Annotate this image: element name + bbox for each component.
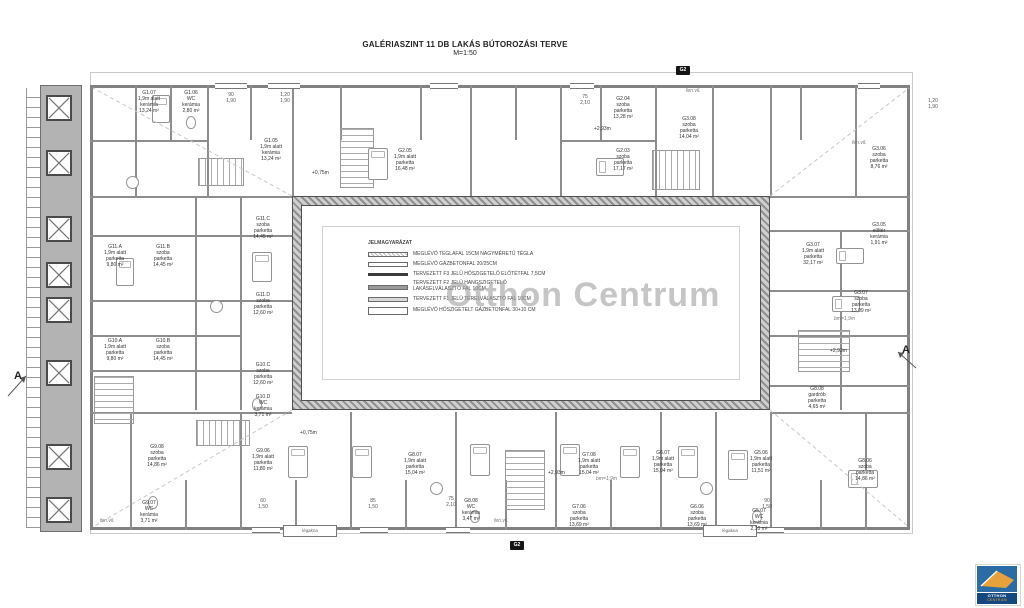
wall-segment: [90, 140, 207, 142]
room-label: G3.06 szoba parketta 8,76 m²: [856, 146, 902, 170]
legend-label: MEGLÉVŐ TÉGLAFAL 15CM NAGYMÉRETŰ TÉGLA: [413, 252, 533, 258]
table-icon: [210, 300, 223, 313]
dimension-label: 90 1,90: [218, 92, 244, 104]
room-label: G9.06 1,9m alatt parketta 11,80 m²: [240, 448, 286, 472]
room-label: G10.A 1,9m alatt parketta 9,80 m²: [92, 338, 138, 362]
dimension-label: 75 2,10: [572, 94, 598, 106]
skylight-note: fen.vil.: [686, 88, 700, 94]
wall-segment: [610, 480, 612, 530]
skylight-icon: [46, 297, 72, 323]
legend-row: MEGLÉVŐ TÉGLAFAL 15CM NAGYMÉRETŰ TÉGLA: [368, 252, 624, 258]
wall-segment: [420, 85, 422, 140]
room-label: G5.07 WC kerámia 2,10 m²: [736, 508, 782, 532]
window-symbol: [570, 83, 594, 89]
room-label: G3.07 szoba parketta 13,09 m²: [838, 290, 884, 314]
section-marker-g2-bottom: G2: [510, 541, 524, 550]
room-label: G3.07 1,9m alatt parketta 32,17 m²: [790, 242, 836, 266]
legend-swatch-f3-icon: [368, 273, 408, 276]
legend-label: TERVEZETT F1 JELŰ TÉRELVÁLASZTÓ FAL 10CM: [413, 297, 531, 303]
level-marker: +2,93m: [548, 470, 565, 476]
level-marker: +2,93m: [594, 126, 611, 132]
window-symbol: [268, 83, 300, 89]
skylight-icon: [46, 150, 72, 176]
bed-icon: [252, 252, 272, 282]
dimension-label: 75 2,10: [438, 496, 464, 508]
room-label: G11.C szoba parketta 14,45 m²: [240, 216, 286, 240]
room-label: G1.07 1,9m alatt kerámia 13,24 m²: [126, 90, 172, 114]
height-note: bm=1,9m: [834, 316, 855, 322]
room-label: G2.03 szoba parketta 17,17 m²: [600, 148, 646, 172]
wall-segment: [515, 85, 517, 140]
toilet-icon: [186, 116, 196, 129]
legend-row: MEGLÉVŐ GÁZBETONFAL 20/25CM: [368, 262, 624, 268]
room-label: G11.B szoba parketta 14,45 m²: [140, 244, 186, 268]
skylight-icon: [46, 360, 72, 386]
wall-segment: [770, 85, 772, 196]
window-symbol: [360, 527, 388, 533]
bed-icon: [352, 446, 372, 478]
room-label: G8.08 gardrób parketta 4,65 m²: [794, 386, 840, 410]
table-icon: [430, 482, 443, 495]
legend-title: JELMAGYARÁZAT: [368, 240, 624, 246]
stairs: [198, 158, 244, 186]
legend-label: TERVEZETT F3 JELŰ HŐSZIGETELŐ ELŐTÉTFAL …: [413, 272, 545, 278]
table-icon: [126, 176, 139, 189]
room-label: G10.B szoba parketta 14,45 m²: [140, 338, 186, 362]
drawing-title: GALÉRIASZINT 11 DB LAKÁS BÚTOROZÁSI TERV…: [300, 40, 630, 49]
skylight-note: fen.vil.: [852, 140, 866, 146]
legend-label: MEGLÉVŐ HŐSZIGETELT GÁZBETONFAL 30+10 CM: [413, 308, 536, 314]
stairs: [196, 420, 250, 446]
window-symbol: [215, 83, 247, 89]
air-shaft: légakna: [283, 525, 337, 537]
window-symbol: [430, 83, 458, 89]
window-symbol: [446, 527, 470, 533]
room-label: G3.08 szoba parketta 14,04 m²: [666, 116, 712, 140]
otthon-centrum-logo: OTTHON CENTRUM: [975, 564, 1021, 606]
wall-segment: [560, 140, 655, 142]
room-label: G2.05 1,9m alatt parketta 16,48 m²: [382, 148, 428, 172]
dimension-label: 1,20 1,90: [920, 98, 946, 110]
room-label: G11.D szoba parketta 12,60 m²: [240, 292, 286, 316]
legend-swatch-f1-icon: [368, 297, 408, 302]
room-label: G7.06 szoba parketta 13,69 m²: [556, 504, 602, 528]
wall-segment: [770, 196, 910, 198]
edge-hatch: [26, 88, 41, 528]
room-label: G2.04 szoba parketta 13,28 m²: [600, 96, 646, 120]
skylight-icon: [46, 497, 72, 523]
legend-label: TERVEZETT F2 JELŰ HANGSZIGETELŐ LAKÁSELV…: [413, 281, 507, 293]
wall-segment: [800, 85, 802, 140]
bed-icon: [836, 248, 864, 264]
level-marker: +0,75m: [312, 170, 329, 176]
section-marker-a-left: A: [14, 370, 22, 382]
wall-segment: [820, 480, 822, 530]
skylight-icon: [46, 95, 72, 121]
skylight-note: fen.vil.: [494, 518, 508, 524]
room-label: G10.D WC kerámia 3,71 m²: [240, 394, 286, 418]
bed-icon: [288, 446, 308, 478]
wall-segment: [90, 335, 240, 337]
room-label: G3.05 előtér kerámia 1,91 m²: [856, 222, 902, 246]
legend-label: MEGLÉVŐ GÁZBETONFAL 20/25CM: [413, 262, 497, 268]
room-label: G7.08 1,9m alatt parketta 15,04 m²: [566, 452, 612, 476]
legend-swatch-brick-icon: [368, 252, 408, 257]
level-marker: +0,75m: [300, 430, 317, 436]
dimension-label: 1,20 1,90: [272, 92, 298, 104]
height-note: bm=1,9m: [596, 476, 617, 482]
room-label: G8.07 1,9m alatt parketta 15,04 m²: [392, 452, 438, 476]
window-symbol: [252, 527, 280, 533]
dimension-label: 90 1,50: [754, 498, 780, 510]
room-label: G5.06 1,9m alatt parketta 11,51 m²: [738, 450, 784, 474]
legend-row: MEGLÉVŐ HŐSZIGETELT GÁZBETONFAL 30+10 CM: [368, 307, 624, 315]
room-label: G1.05 1,9m alatt kerámia 13,24 m²: [248, 138, 294, 162]
skylight-icon: [46, 444, 72, 470]
floor-plan-canvas: GALÉRIASZINT 11 DB LAKÁS BÚTOROZÁSI TERV…: [0, 0, 1024, 608]
room-label: G9.07 WC kerámia 3,71 m²: [126, 500, 172, 524]
wall-segment: [250, 85, 252, 140]
drawing-scale: M=1:50: [300, 50, 630, 57]
dimension-label: 85 1,50: [360, 498, 386, 510]
wall-segment: [770, 412, 910, 414]
logo-line2: CENTRUM: [977, 598, 1017, 602]
legend: JELMAGYARÁZAT MEGLÉVŐ TÉGLAFAL 15CM NAGY…: [368, 240, 624, 319]
legend-row: TERVEZETT F1 JELŰ TÉRELVÁLASZTÓ FAL 10CM: [368, 297, 624, 303]
room-label: G6.07 1,9m alatt parketta 15,04 m²: [640, 450, 686, 474]
room-label: G1.06 WC kerámia 2,80 m²: [168, 90, 214, 114]
section-marker-a-right: A: [902, 344, 910, 356]
wall-segment: [405, 480, 407, 530]
wall-segment: [185, 480, 187, 530]
legend-swatch-gasconcrete-icon: [368, 262, 408, 267]
wall-segment: [712, 85, 714, 196]
skylight-icon: [46, 216, 72, 242]
legend-swatch-insulated-icon: [368, 307, 408, 315]
logo-wordmark: OTTHON CENTRUM: [977, 593, 1017, 604]
bed-icon: [470, 444, 490, 476]
stairs: [652, 150, 700, 190]
room-label: G10.C szoba parketta 12,60 m²: [240, 362, 286, 386]
wall-segment: [90, 196, 292, 198]
legend-swatch-f2-icon: [368, 285, 408, 290]
stairs: [94, 376, 134, 424]
skylight-note: fen.vil.: [100, 518, 114, 524]
level-marker: +2,93m: [830, 348, 847, 354]
room-label: G9.08 szoba parketta 14,86 m²: [134, 444, 180, 468]
legend-row: TERVEZETT F3 JELŰ HŐSZIGETELŐ ELŐTÉTFAL …: [368, 272, 624, 278]
table-icon: [700, 482, 713, 495]
logo-roof-icon: [977, 566, 1017, 592]
wall-segment: [770, 385, 910, 387]
wall-segment: [295, 480, 297, 530]
section-marker-g2-top: G2: [676, 66, 690, 75]
legend-row: TERVEZETT F2 JELŰ HANGSZIGETELŐ LAKÁSELV…: [368, 281, 624, 293]
room-label: G8.06 szoba parketta 14,86 m²: [842, 458, 888, 482]
skylight-icon: [46, 262, 72, 288]
bed-icon: [620, 446, 640, 478]
dimension-label: 60 1,50: [250, 498, 276, 510]
stairs: [505, 450, 545, 510]
room-label: G6.06 szoba parketta 13,69 m²: [674, 504, 720, 528]
wall-segment: [470, 85, 472, 196]
window-symbol: [858, 83, 880, 89]
wall-segment: [195, 196, 197, 410]
room-label: G11.A 1,9m alatt parketta 9,80 m²: [92, 244, 138, 268]
